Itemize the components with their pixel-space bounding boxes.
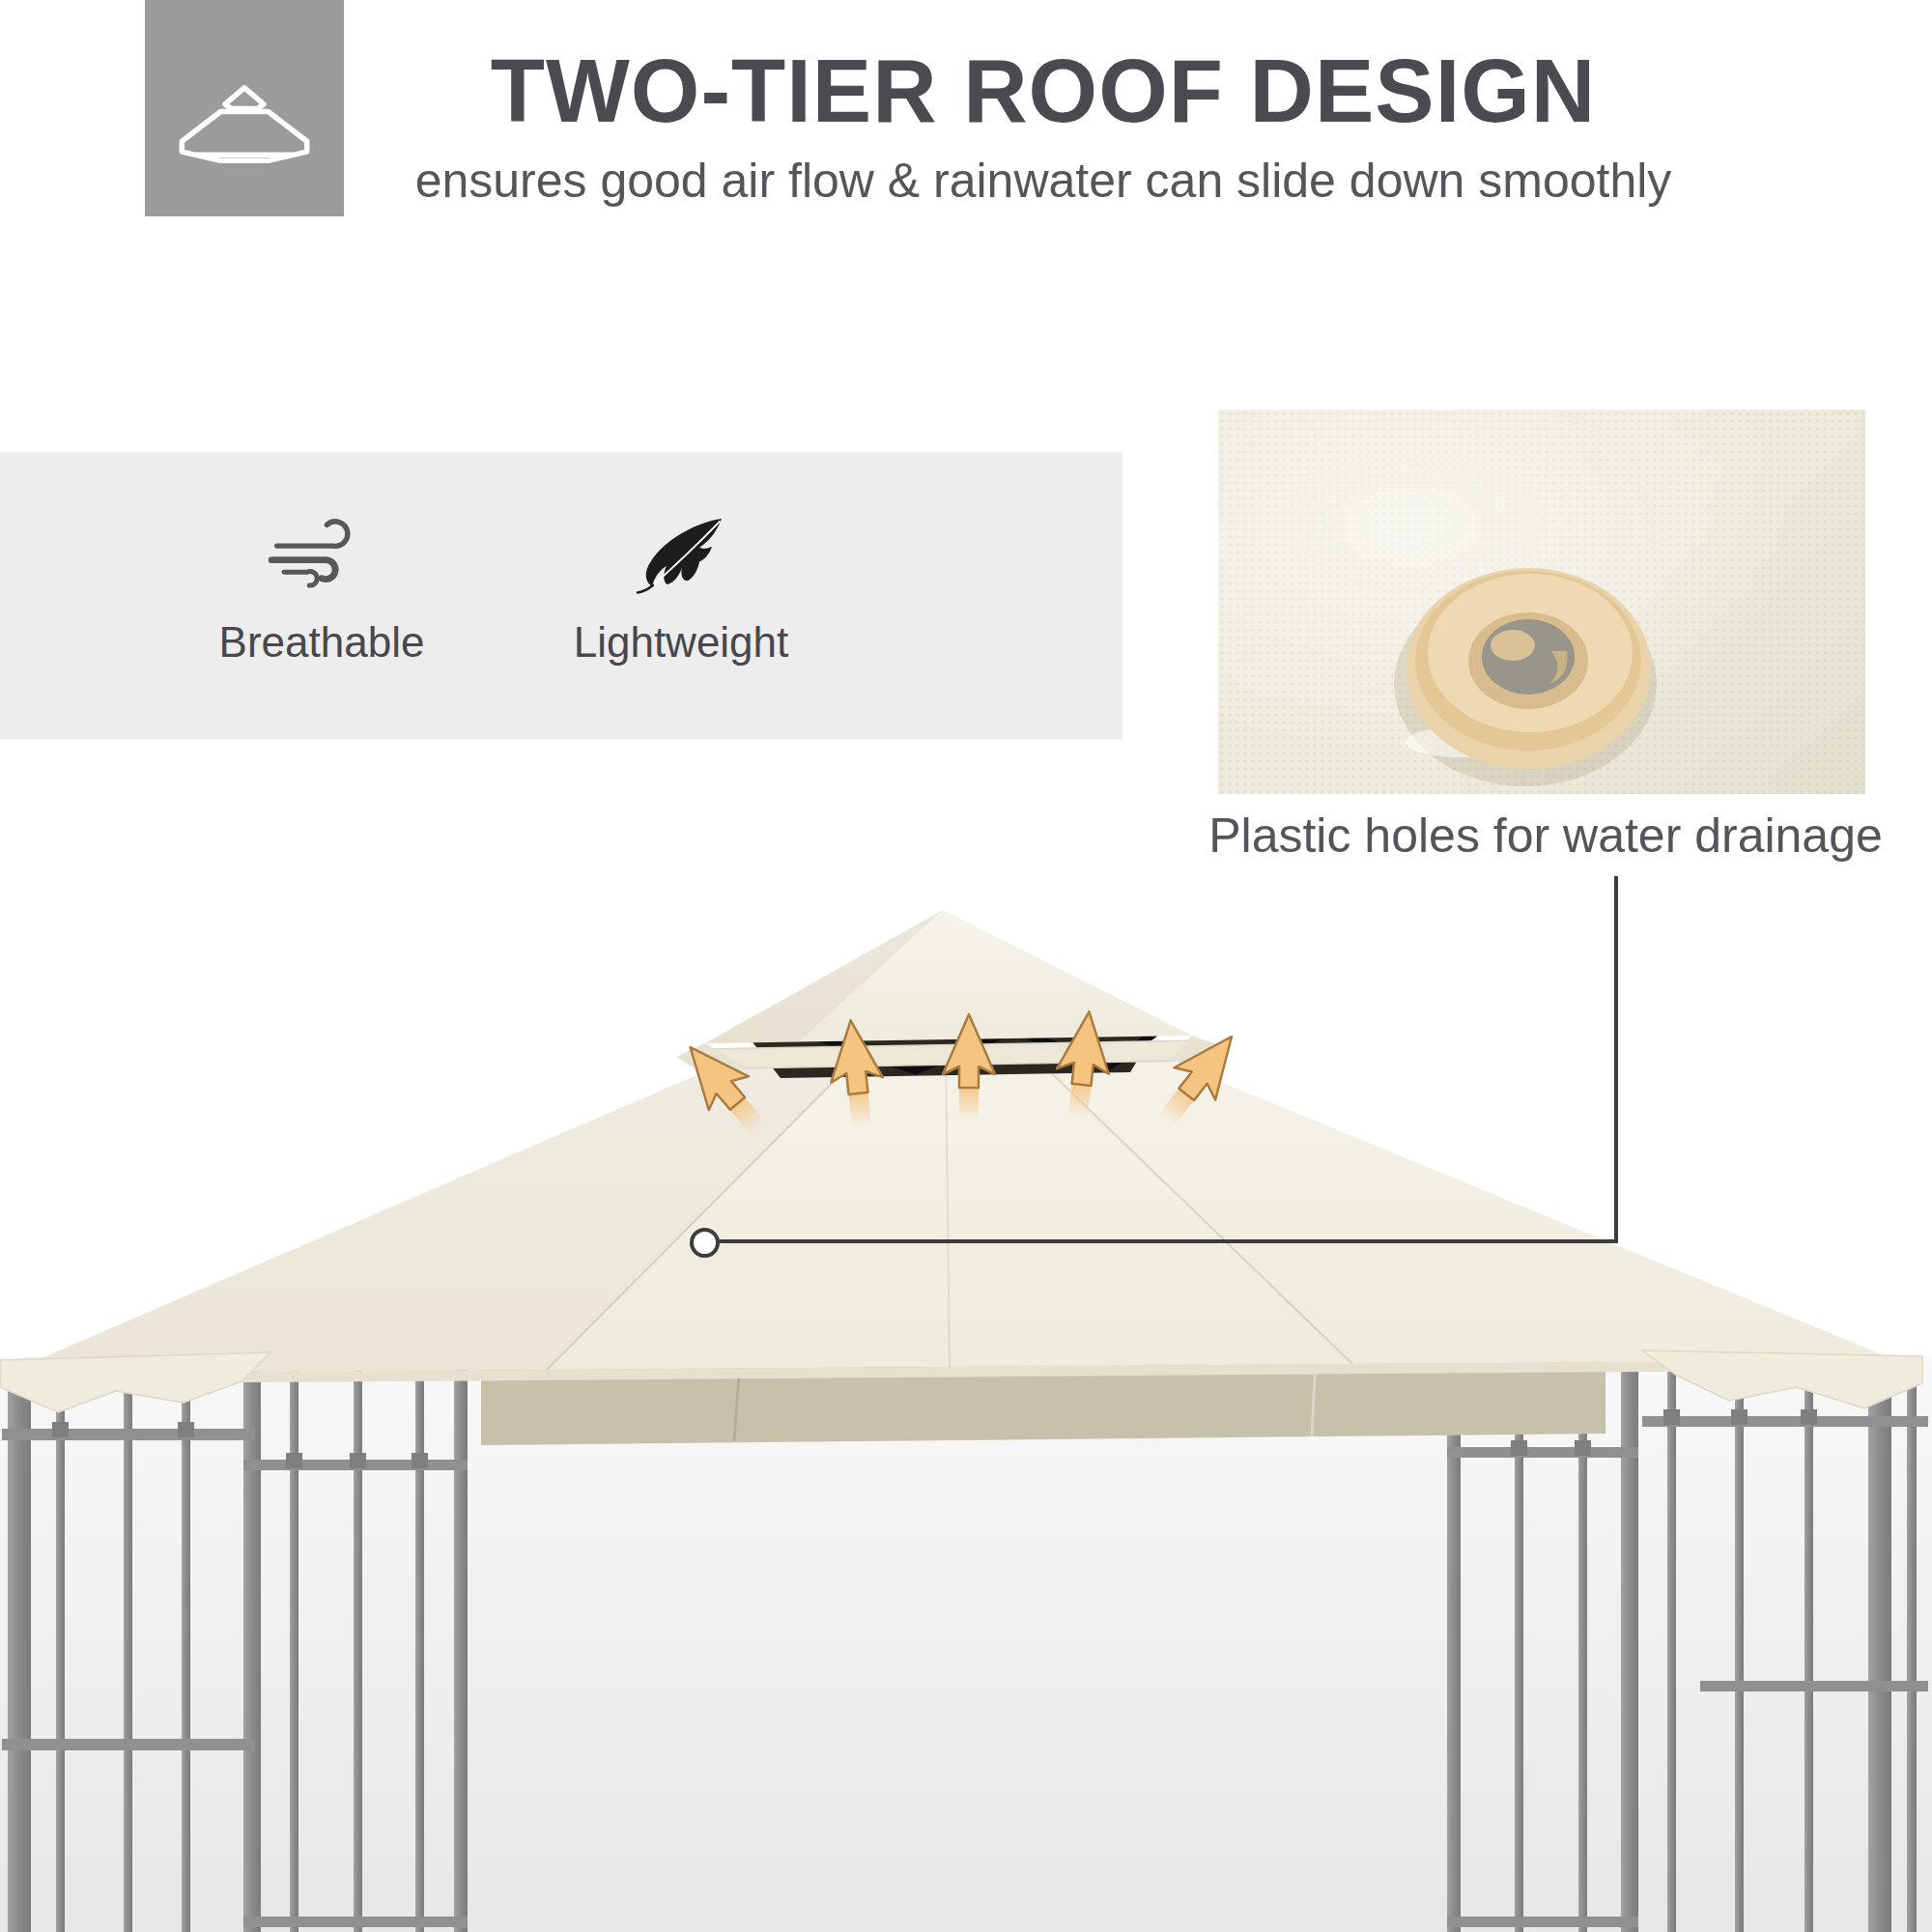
feather-icon [555, 512, 807, 601]
product-feature-page: TWO-TIER ROOF DESIGN ensures good air fl… [0, 0, 1932, 1932]
drain-hole-graphic [1218, 410, 1865, 794]
drain-hole-photo [1218, 410, 1865, 794]
canopy-top-tier [676, 910, 1219, 1086]
feature-label: Breathable [201, 618, 442, 667]
circle-marker [690, 1228, 720, 1258]
gazebo-illustration [0, 908, 1932, 1932]
page-title: TWO-TIER ROOF DESIGN [319, 41, 1768, 142]
leader-line-horizontal [713, 1239, 1618, 1243]
wind-icon [201, 512, 442, 601]
page-subtitle: ensures good air flow & rainwater can sl… [241, 153, 1845, 209]
leader-line-vertical [1614, 876, 1618, 1243]
feature-band: Breathable Lightweight [0, 452, 1122, 739]
feature-breathable: Breathable [201, 512, 442, 667]
feature-label: Lightweight [555, 618, 807, 667]
feature-lightweight: Lightweight [555, 512, 807, 667]
photo-caption: Plastic holes for water drainage [1159, 808, 1932, 864]
